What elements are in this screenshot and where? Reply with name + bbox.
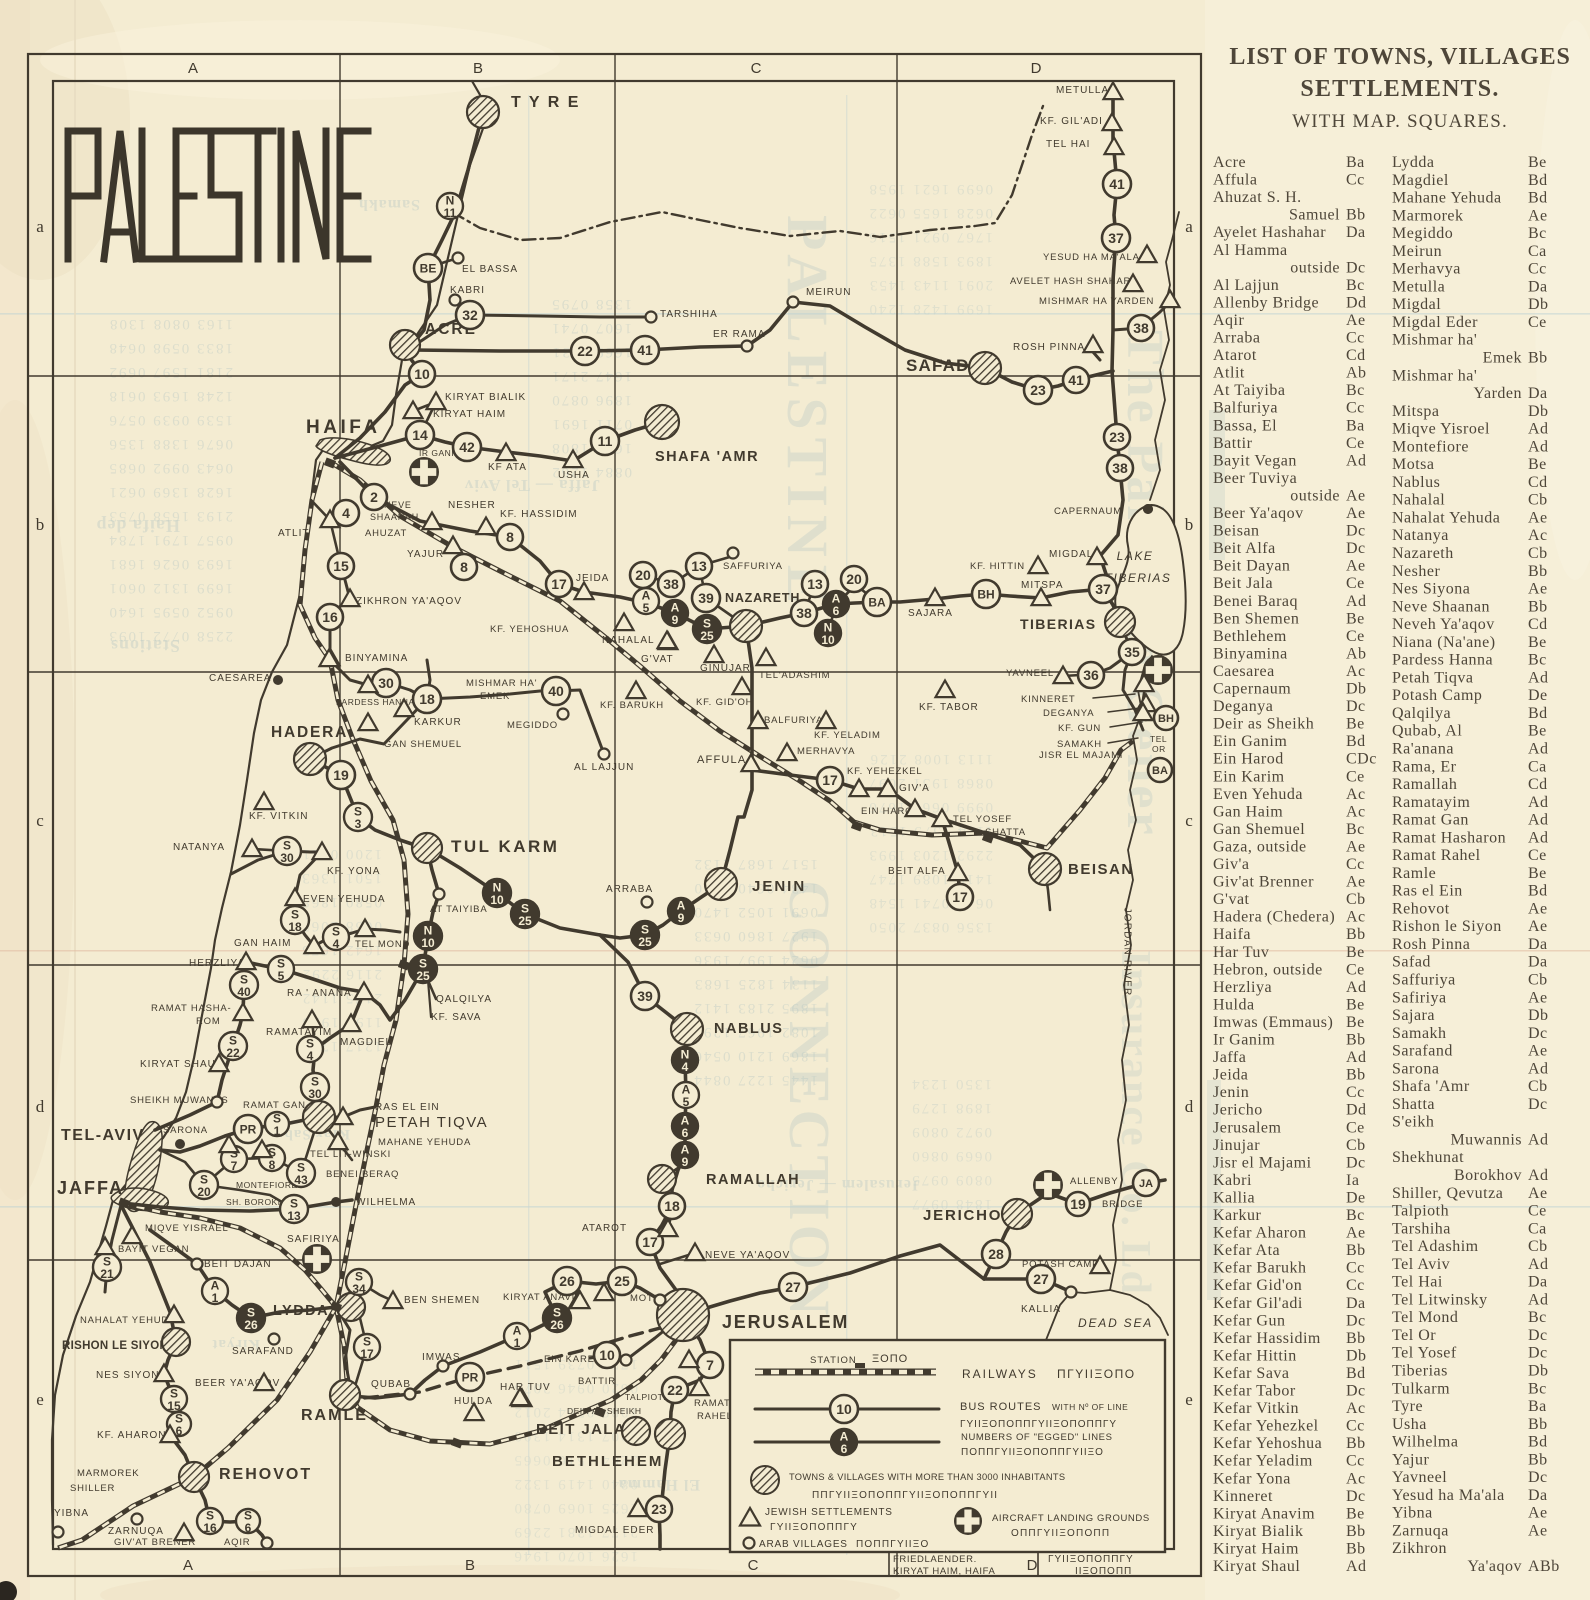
svg-text:Ac: Ac [1346,1470,1366,1487]
svg-text:6: 6 [245,1521,252,1535]
svg-text:11: 11 [598,433,613,449]
svg-text:GAN SHEMUEL: GAN SHEMUEL [384,739,462,750]
svg-text:Ras el Ein: Ras el Ein [1392,883,1463,900]
svg-text:MIGDAL EDER: MIGDAL EDER [575,1525,655,1536]
svg-text:Tel Yosef: Tel Yosef [1392,1345,1457,1362]
svg-text:ΠΟΠΠΓΥΙΙΞΟ: ΠΟΠΠΓΥΙΙΞΟ [856,1539,929,1550]
svg-text:Balfuriya: Balfuriya [1213,400,1278,417]
svg-text:ALLENBY: ALLENBY [1070,1176,1118,1187]
svg-text:4: 4 [342,505,350,521]
svg-text:39: 39 [637,988,653,1004]
svg-text:Cd: Cd [1528,776,1548,793]
svg-text:FRIEDLAENDER.: FRIEDLAENDER. [893,1554,977,1565]
svg-text:37: 37 [1095,581,1111,597]
svg-text:1: 1 [514,1336,521,1350]
svg-text:MAGDIEL: MAGDIEL [340,1037,392,1048]
svg-text:Bb: Bb [1528,563,1548,580]
svg-text:1134 1825 1683: 1134 1825 1683 [693,976,818,992]
svg-text:Rama, Er: Rama, Er [1392,758,1457,775]
svg-text:Ad: Ad [1346,452,1367,469]
svg-text:Ramallah: Ramallah [1392,776,1457,793]
svg-text:Samakh: Samakh [358,196,420,213]
svg-text:25: 25 [614,1273,630,1289]
svg-text:Ae: Ae [1528,1043,1548,1060]
svg-text:BENEI BERAQ: BENEI BERAQ [326,1169,399,1180]
svg-text:Ca: Ca [1528,243,1547,260]
svg-text:HADERA: HADERA [271,724,348,741]
svg-text:Bb: Bb [1528,1416,1548,1433]
svg-text:Bc: Bc [1346,382,1365,399]
svg-text:18: 18 [664,1198,680,1214]
svg-text:SAFAD: SAFAD [906,356,970,375]
svg-text:Be: Be [1528,456,1547,473]
svg-text:AQIR: AQIR [224,1537,250,1548]
svg-text:Cc: Cc [1346,400,1365,417]
svg-text:Be: Be [1346,944,1365,961]
svg-text:NEVE YA'AQOV: NEVE YA'AQOV [705,1250,790,1261]
svg-text:NABLUS: NABLUS [714,1021,783,1037]
svg-text:Beit Alfa: Beit Alfa [1213,540,1276,557]
svg-text:Tel Adashim: Tel Adashim [1392,1238,1479,1255]
svg-text:TARSHIHA: TARSHIHA [660,309,718,320]
svg-text:Insurance Co. Ld: Insurance Co. Ld [1112,950,1158,1296]
svg-text:KF. YEHOSHUA: KF. YEHOSHUA [490,624,569,635]
svg-text:Herzliya: Herzliya [1213,979,1272,996]
svg-text:Talpioth: Talpioth [1392,1203,1449,1220]
svg-text:23: 23 [1109,429,1125,445]
svg-text:Ca: Ca [1528,1220,1547,1237]
svg-text:Ae: Ae [1528,1185,1548,1202]
svg-text:Deir as Sheikh: Deir as Sheikh [1213,716,1314,733]
svg-text:BEIT ALFA: BEIT ALFA [888,866,946,877]
svg-text:Kefar Yeladim: Kefar Yeladim [1213,1453,1313,1470]
svg-text:Ad: Ad [1528,421,1549,438]
svg-text:c: c [36,811,44,830]
svg-text:Samuel: Samuel [1289,207,1340,224]
svg-text:Shiller, Qevutza: Shiller, Qevutza [1392,1185,1503,1202]
svg-text:Dc: Dc [1528,1327,1548,1344]
svg-text:Bd: Bd [1528,172,1548,189]
svg-text:Mishmar ha': Mishmar ha' [1392,332,1477,349]
svg-text:Bethlehem: Bethlehem [1213,628,1287,645]
svg-text:Ab: Ab [1346,365,1367,382]
svg-text:Ad: Ad [1528,794,1549,811]
svg-text:Ad: Ad [1346,1558,1367,1575]
svg-text:WILHELMA: WILHELMA [356,1197,416,1208]
svg-text:Ad: Ad [1528,438,1549,455]
svg-text:YESUD HA MA'ALA: YESUD HA MA'ALA [1043,252,1140,263]
svg-text:AHUZAT: AHUZAT [365,528,407,539]
svg-text:Db: Db [1528,1363,1549,1380]
svg-text:Sarafand: Sarafand [1392,1043,1453,1060]
svg-text:EMEK: EMEK [480,691,510,702]
svg-text:Ac: Ac [1346,803,1366,820]
svg-text:ROM: ROM [196,1016,221,1027]
svg-text:Affula: Affula [1213,172,1257,189]
svg-text:40: 40 [548,683,564,699]
svg-text:NESHER: NESHER [448,500,496,511]
svg-text:Cd: Cd [1528,474,1548,491]
svg-text:17: 17 [360,1347,374,1361]
svg-text:STATION: STATION [810,1355,857,1366]
svg-text:Kinneret: Kinneret [1213,1488,1273,1505]
svg-text:Bc: Bc [1346,1207,1365,1224]
svg-text:Bb: Bb [1528,598,1548,615]
svg-text:KF. SAVA: KF. SAVA [431,1012,481,1023]
svg-text:20: 20 [197,1185,211,1199]
svg-text:WITH Nº OF LINE: WITH Nº OF LINE [1052,1402,1128,1412]
svg-text:Tel Or: Tel Or [1392,1327,1436,1344]
svg-text:Da: Da [1528,385,1548,402]
svg-text:8: 8 [460,559,468,575]
svg-text:e: e [1185,1390,1193,1409]
svg-text:20: 20 [846,571,862,587]
svg-text:Dc: Dc [1528,1096,1548,1113]
svg-text:TIBERIAS: TIBERIAS [1020,616,1097,632]
svg-text:Nes Siyona: Nes Siyona [1392,581,1470,598]
svg-text:Ahuzat S. H.: Ahuzat S. H. [1213,189,1302,206]
svg-text:BE: BE [420,261,437,275]
svg-text:WITH MAP. SQUARES.: WITH MAP. SQUARES. [1292,111,1508,132]
svg-text:Cc: Cc [1346,1084,1365,1101]
svg-text:Cb: Cb [1346,891,1366,908]
svg-text:1539 0939 0576: 1539 0939 0576 [108,412,234,428]
svg-text:1350 1234: 1350 1234 [910,1076,992,1092]
svg-text:SHILLER: SHILLER [70,1483,115,1494]
svg-text:Kefar Yehoshua: Kefar Yehoshua [1213,1435,1322,1452]
svg-text:JEWISH SETTLEMENTS: JEWISH SETTLEMENTS [765,1507,893,1518]
svg-text:HAIFA: HAIFA [306,417,381,438]
svg-text:JERICHO: JERICHO [923,1207,1002,1224]
svg-text:41: 41 [637,342,653,358]
svg-text:Shafa 'Amr: Shafa 'Amr [1392,1078,1470,1095]
svg-text:22: 22 [667,1382,683,1398]
svg-text:Meirun: Meirun [1392,243,1442,260]
svg-text:Bb: Bb [1346,1330,1366,1347]
svg-text:MIQVE YISRAEL: MIQVE YISRAEL [145,1223,229,1234]
svg-text:Mitspa: Mitspa [1392,403,1439,420]
svg-text:40: 40 [237,985,251,999]
svg-text:Kefar Hittin: Kefar Hittin [1213,1347,1297,1364]
svg-text:Kefar Barukh: Kefar Barukh [1213,1260,1307,1277]
svg-text:ATLIT: ATLIT [278,528,309,539]
svg-text:Neve Shaanan: Neve Shaanan [1392,598,1490,615]
svg-text:1: 1 [274,1124,281,1138]
svg-text:SETTLEMENTS.: SETTLEMENTS. [1300,76,1499,102]
svg-text:d: d [36,1097,45,1116]
svg-text:SAFIRIYA: SAFIRIYA [287,1234,340,1245]
svg-text:BAYIT VEGAN: BAYIT VEGAN [118,1244,189,1255]
svg-text:SARONA: SARONA [163,1125,208,1136]
svg-text:b: b [36,515,45,534]
svg-text:Jaffa: Jaffa [1213,1049,1246,1066]
svg-text:Tiberias: Tiberias [1392,1363,1448,1380]
svg-text:Yavneel: Yavneel [1392,1469,1447,1486]
svg-text:1163 0808 1308: 1163 0808 1308 [108,316,233,332]
svg-text:5: 5 [278,969,285,983]
svg-text:Ad: Ad [1346,593,1367,610]
svg-text:Kiryat Haim: Kiryat Haim [1213,1540,1299,1557]
svg-text:NAHALAL: NAHALAL [602,635,655,646]
svg-text:Rosh Pinna: Rosh Pinna [1392,936,1470,953]
svg-text:10: 10 [821,633,835,647]
svg-text:Migdal: Migdal [1392,296,1441,313]
svg-text:41: 41 [1109,176,1125,192]
svg-text:BETHLEHEM: BETHLEHEM [552,1453,663,1470]
svg-text:8: 8 [269,1158,276,1172]
svg-text:KF. YELADIM: KF. YELADIM [814,730,881,741]
svg-text:Usha: Usha [1392,1416,1427,1433]
svg-text:Bb: Bb [1528,1451,1548,1468]
svg-text:0952 0595 1640: 0952 0595 1640 [108,604,234,620]
svg-text:Tarshiha: Tarshiha [1392,1220,1451,1237]
svg-text:Be: Be [1528,723,1547,740]
svg-text:23: 23 [651,1501,667,1517]
svg-text:Jericho: Jericho [1213,1102,1263,1119]
svg-text:Bb: Bb [1346,1032,1366,1049]
svg-text:Hadera (Chedera): Hadera (Chedera) [1213,909,1335,926]
svg-text:Ae: Ae [1528,1522,1548,1539]
svg-text:Bb: Bb [1346,207,1366,224]
svg-text:Natanya: Natanya [1392,527,1449,544]
svg-text:Beer Tuviya: Beer Tuviya [1213,470,1297,487]
svg-text:1625 1069 0780: 1625 1069 0780 [513,1500,639,1516]
svg-text:Beer Ya'aqov: Beer Ya'aqov [1213,505,1304,522]
svg-text:PR: PR [462,1370,479,1384]
svg-text:Acre: Acre [1213,154,1246,171]
svg-text:AT TAIYIBA: AT TAIYIBA [430,904,487,915]
svg-text:Ae: Ae [1528,918,1548,935]
svg-text:Ae: Ae [1346,505,1366,522]
svg-text:Kefar Gid'on: Kefar Gid'on [1213,1277,1302,1294]
svg-text:Ramatayim: Ramatayim [1392,794,1470,811]
svg-text:NEVE: NEVE [384,500,412,510]
svg-text:Be: Be [1346,996,1365,1013]
svg-text:Tel Litwinsky: Tel Litwinsky [1392,1291,1488,1308]
svg-text:Haifa dep: Haifa dep [95,516,180,536]
svg-text:outside: outside [1290,259,1340,276]
svg-text:25: 25 [518,914,532,928]
svg-text:Rishon le Siyon: Rishon le Siyon [1392,918,1502,935]
svg-text:Dc: Dc [1346,523,1366,540]
svg-text:Ae: Ae [1528,989,1548,1006]
svg-text:Wilhelma: Wilhelma [1392,1434,1458,1451]
svg-text:LAKE: LAKE [1117,549,1154,563]
svg-text:25: 25 [638,935,652,949]
svg-text:Ae: Ae [1528,1505,1548,1522]
svg-text:BATTIR: BATTIR [578,1376,616,1387]
svg-text:D: D [1031,60,1042,77]
svg-text:MERHAVYA: MERHAVYA [797,746,855,757]
svg-text:RAS EL EIN: RAS EL EIN [375,1102,440,1113]
svg-text:Ce: Ce [1346,961,1365,978]
svg-text:Cc: Cc [1346,1418,1365,1435]
svg-text:RAMAT: RAMAT [694,1398,731,1409]
svg-text:13: 13 [691,558,707,574]
svg-text:Ac: Ac [1346,663,1366,680]
svg-text:KF ATA: KF ATA [488,462,527,473]
svg-text:YAVNEEL: YAVNEEL [1006,668,1054,679]
svg-text:8: 8 [506,529,514,545]
svg-text:Da: Da [1346,224,1366,241]
svg-text:25: 25 [700,629,714,643]
svg-text:C: C [748,1557,759,1574]
svg-text:MARMOREK: MARMOREK [77,1468,139,1479]
svg-text:ABb: ABb [1528,1558,1560,1575]
svg-text:Jisr el Majami: Jisr el Majami [1213,1154,1312,1171]
svg-text:11: 11 [444,206,457,220]
svg-text:LYDDA: LYDDA [273,1303,329,1319]
svg-text:TEL: TEL [1150,734,1167,744]
svg-text:BH: BH [977,587,994,601]
svg-text:AIRCRAFT LANDING GROUNDS: AIRCRAFT LANDING GROUNDS [992,1513,1150,1524]
svg-text:36: 36 [1083,667,1099,683]
svg-text:Giv'at Brenner: Giv'at Brenner [1213,874,1314,891]
svg-text:Bb: Bb [1346,1242,1366,1259]
svg-text:Jeida: Jeida [1213,1067,1248,1084]
svg-text:ΠΓΥΙΙΞΟΠΟ: ΠΓΥΙΙΞΟΠΟ [1057,1367,1136,1381]
svg-text:Ad: Ad [1528,1167,1549,1184]
svg-text:Da: Da [1346,1295,1366,1312]
svg-text:22: 22 [226,1046,240,1060]
svg-text:ΓΥΙΙΞΟΠΟΠΠΓΥ: ΓΥΙΙΞΟΠΟΠΠΓΥ [1048,1554,1134,1565]
svg-text:TEL HAI: TEL HAI [1046,139,1090,150]
svg-text:GINUJAR: GINUJAR [700,663,751,674]
svg-text:DEAD SEA: DEAD SEA [1078,1316,1153,1330]
svg-text:20: 20 [635,567,651,583]
svg-text:38: 38 [663,576,679,592]
svg-text:Ad: Ad [1528,1131,1549,1148]
svg-text:Nablus: Nablus [1392,474,1440,491]
svg-text:G'VAT: G'VAT [641,654,674,665]
svg-text:43: 43 [294,1173,308,1187]
svg-text:Ae: Ae [1346,874,1366,891]
svg-text:Jenin: Jenin [1213,1084,1249,1101]
svg-text:0628 1655 0622: 0628 1655 0622 [868,205,994,221]
svg-text:MEGIDDO: MEGIDDO [507,720,558,731]
svg-text:1893 1588 1375: 1893 1588 1375 [868,253,994,269]
svg-text:BEIT JALA: BEIT JALA [536,1421,626,1438]
svg-text:Cc: Cc [1346,1260,1365,1277]
svg-text:Be: Be [1528,865,1547,882]
svg-text:KF. YONA: KF. YONA [327,866,380,877]
svg-text:Ac: Ac [1528,527,1548,544]
svg-text:MISHMAR HA': MISHMAR HA' [466,678,537,689]
svg-text:EVEN YEHUDA: EVEN YEHUDA [303,894,386,905]
svg-text:Ae: Ae [1528,581,1548,598]
svg-text:7: 7 [706,1357,714,1373]
svg-text:Ac: Ac [1346,1400,1366,1417]
svg-text:REHOVOT: REHOVOT [219,1466,312,1483]
svg-text:KF. VITKIN: KF. VITKIN [249,811,308,822]
svg-text:1626 1070 1946: 1626 1070 1946 [513,1548,639,1564]
svg-text:Kefar Yehezkel: Kefar Yehezkel [1213,1418,1319,1435]
svg-text:Dc: Dc [1528,1025,1548,1042]
svg-text:Ae: Ae [1528,900,1548,917]
svg-text:Db: Db [1346,681,1367,698]
svg-text:AVELET HASH SHAHAR: AVELET HASH SHAHAR [1010,276,1131,287]
svg-text:Bd: Bd [1346,1365,1366,1382]
svg-text:Ad: Ad [1528,829,1549,846]
svg-text:ΠΠΓΥΙΙΞΟΠΟΠΠΓΥΙΙΞΟΠΟΠΠΓΥΙΙ: ΠΠΓΥΙΙΞΟΠΟΠΠΓΥΙΙΞΟΠΟΠΠΓΥΙΙ [812,1490,998,1501]
svg-text:Cd: Cd [1346,347,1366,364]
svg-text:Rehovot: Rehovot [1392,900,1450,917]
svg-text:ARRABA: ARRABA [606,884,653,895]
svg-text:Mishmar ha': Mishmar ha' [1392,367,1477,384]
svg-text:Dc: Dc [1346,540,1366,557]
svg-text:Lydda: Lydda [1392,154,1435,171]
svg-text:Cb: Cb [1528,1238,1548,1255]
svg-text:Ce: Ce [1346,1119,1365,1136]
svg-text:Cb: Cb [1528,492,1548,509]
svg-text:Shatta: Shatta [1392,1096,1435,1113]
svg-text:Cc: Cc [1346,856,1365,873]
svg-text:RAMLE: RAMLE [301,1407,368,1424]
svg-text:Jerusalem: Jerusalem [1213,1119,1282,1136]
svg-text:B: B [465,1557,475,1574]
svg-text:KIRYAT BIALIK: KIRYAT BIALIK [445,392,526,403]
svg-text:Kiryat Anavim: Kiryat Anavim [1213,1505,1315,1522]
svg-text:13: 13 [287,1209,301,1223]
svg-text:Bc: Bc [1528,1309,1547,1326]
svg-text:MIGDAL: MIGDAL [1049,549,1093,560]
svg-text:MEIRUN: MEIRUN [806,287,851,298]
svg-text:USHA: USHA [558,470,590,481]
svg-text:ΞΟΠΟ: ΞΟΠΟ [872,1353,908,1365]
svg-text:Ac: Ac [1346,909,1366,926]
svg-text:Montefiore: Montefiore [1392,438,1469,455]
svg-text:10: 10 [836,1401,852,1417]
svg-text:Db: Db [1346,1347,1367,1364]
svg-text:ER RAMA: ER RAMA [713,329,766,340]
svg-text:PETAH TIQVA: PETAH TIQVA [375,1114,488,1131]
svg-text:ΓΥΙΙΞΟΠΟΠΠΓΥ: ΓΥΙΙΞΟΠΟΠΠΓΥ [770,1522,858,1533]
svg-text:NUMBERS OF "EGGED" LINES: NUMBERS OF "EGGED" LINES [961,1432,1113,1443]
svg-text:38: 38 [796,605,812,621]
svg-text:NATANYA: NATANYA [173,842,225,853]
svg-text:Dc: Dc [1528,1345,1548,1362]
svg-text:BA: BA [1152,765,1168,777]
svg-text:BRIDGE: BRIDGE [1102,1199,1143,1210]
svg-text:26: 26 [559,1273,575,1289]
svg-text:Ba: Ba [1346,154,1365,171]
svg-text:Cd: Cd [1528,616,1548,633]
svg-text:Battir: Battir [1213,435,1253,452]
svg-text:Ce: Ce [1346,628,1365,645]
svg-text:Nazareth: Nazareth [1392,545,1454,562]
svg-text:YAJUR: YAJUR [407,549,444,560]
svg-text:Har Tuv: Har Tuv [1213,944,1269,961]
svg-text:PALESTINE: PALESTINE [775,215,840,611]
svg-text:JISR EL MAJAMI: JISR EL MAJAMI [1039,750,1123,761]
svg-text:Da: Da [1528,954,1548,971]
svg-text:Binyamina: Binyamina [1213,645,1288,662]
svg-text:RA ' ANANA: RA ' ANANA [287,988,352,999]
svg-text:Beit Dayan: Beit Dayan [1213,558,1290,575]
svg-text:BINYAMINA: BINYAMINA [345,653,408,664]
svg-text:EL BASSA: EL BASSA [462,264,518,275]
svg-text:Neveh Ya'aqov: Neveh Ya'aqov [1392,616,1495,633]
svg-text:30: 30 [280,851,294,865]
svg-text:Ir Ganim: Ir Ganim [1213,1032,1275,1049]
svg-text:KF. TABOR: KF. TABOR [919,702,979,713]
svg-text:Marmorek: Marmorek [1392,207,1464,224]
svg-text:Db: Db [1528,403,1549,420]
svg-text:Tel Aviv: Tel Aviv [1392,1256,1450,1273]
svg-text:9: 9 [682,1155,689,1169]
svg-text:AFFULA: AFFULA [697,754,746,766]
svg-text:Ad: Ad [1528,812,1549,829]
